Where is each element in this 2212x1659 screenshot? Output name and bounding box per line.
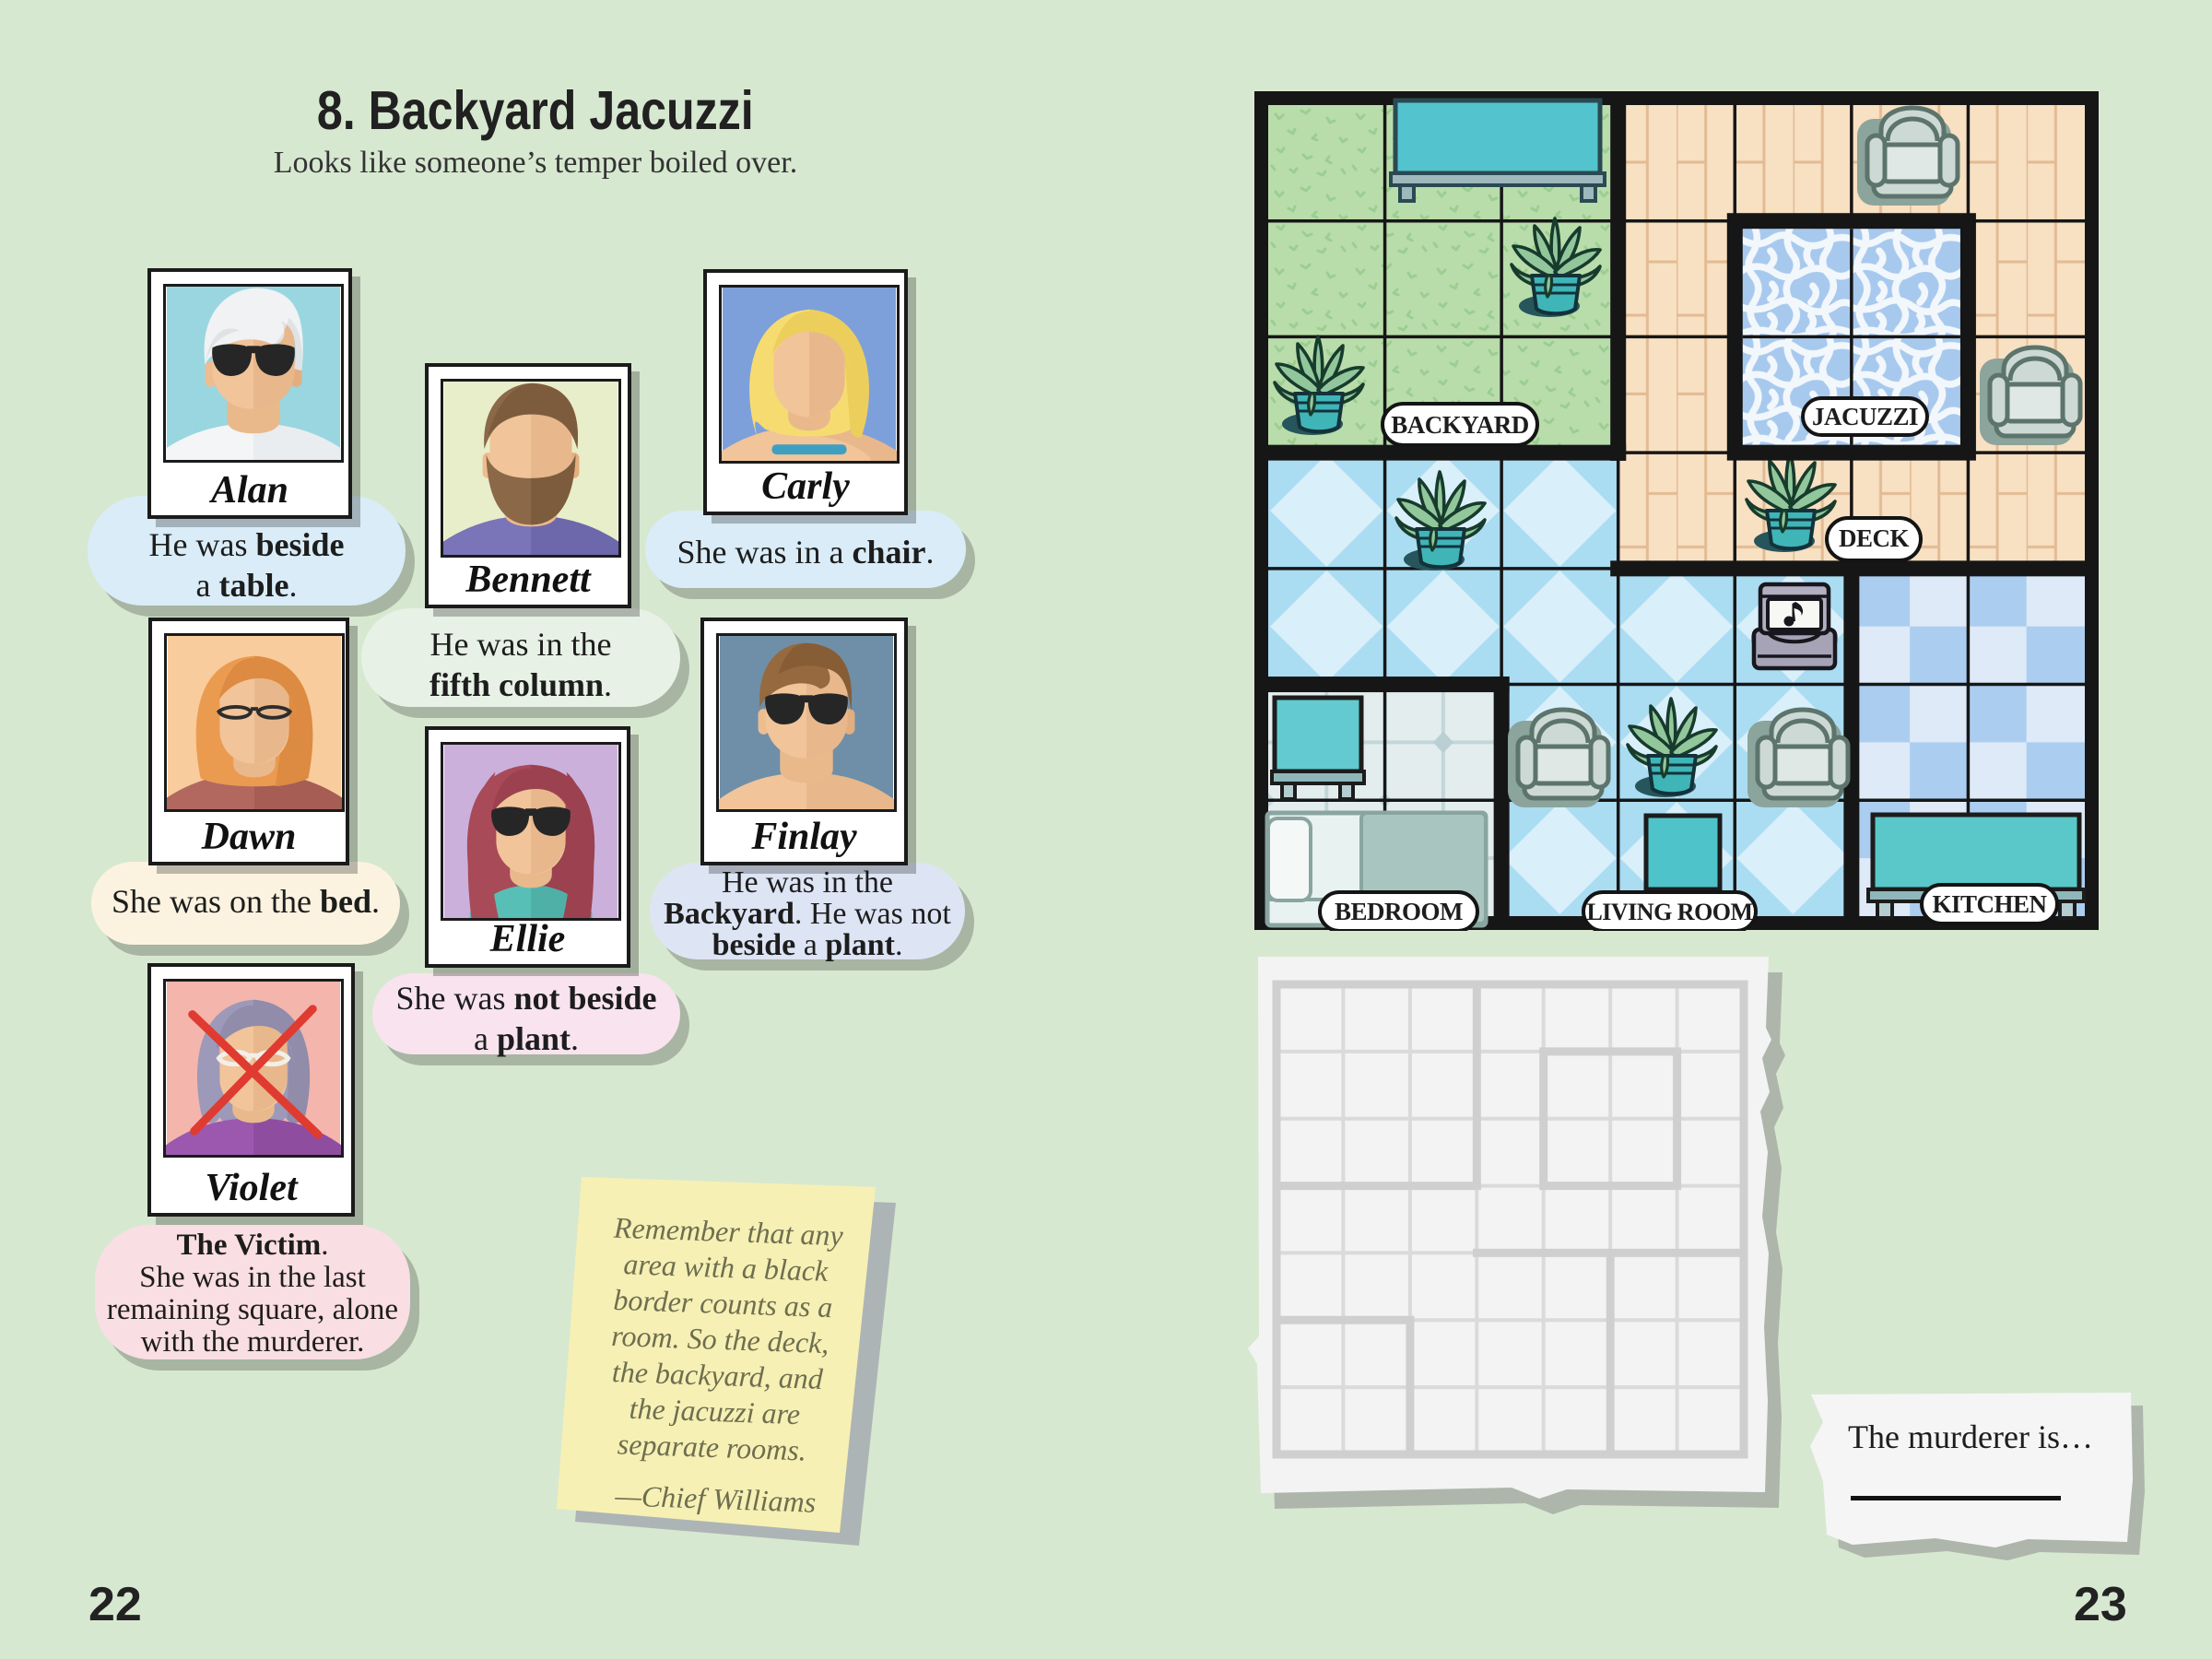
svg-text:JACUZZI: JACUZZI [1812,403,1918,430]
svg-text:The murderer is…: The murderer is… [1848,1418,2093,1455]
svg-text:BACKYARD: BACKYARD [1391,411,1529,439]
svg-text:the jacuzzi are: the jacuzzi are [629,1392,801,1430]
svg-text:LIVING ROOM: LIVING ROOM [1586,899,1752,925]
svg-text:KITCHEN: KITCHEN [1932,890,2047,918]
svg-text:DECK: DECK [1839,524,1910,552]
svg-text:separate rooms.: separate rooms. [617,1427,806,1466]
svg-text:—Chief Williams: —Chief Williams [614,1478,817,1519]
svg-text:BEDROOM: BEDROOM [1335,898,1463,925]
